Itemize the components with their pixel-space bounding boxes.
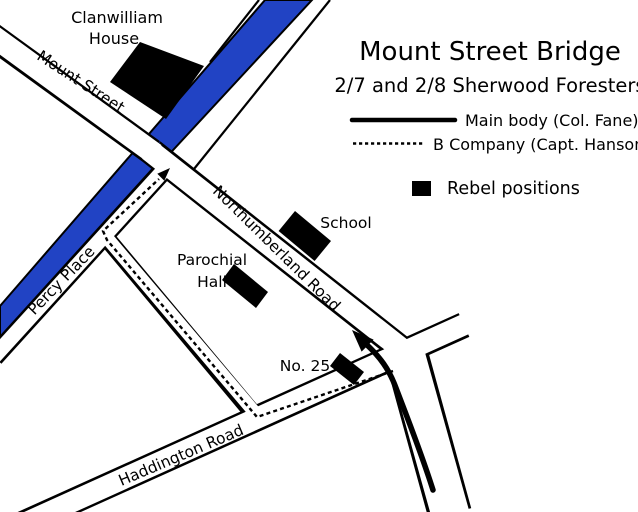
haddington-road-label: Haddington Road: [116, 421, 246, 490]
legend-rebel-label: Rebel positions: [447, 179, 580, 199]
battle-map: Clanwilliam House Mount Street Percy Pla…: [0, 0, 638, 512]
legend-main-body-label: Main body (Col. Fane): [465, 111, 638, 130]
page-subtitle: 2/7 and 2/8 Sherwood Foresters: [334, 74, 638, 97]
clanwilliam-label-line2: House: [89, 29, 139, 48]
school-label: School: [320, 214, 371, 232]
title-block: Mount Street Bridge 2/7 and 2/8 Sherwood…: [334, 37, 638, 97]
legend: Main body (Col. Fane) B Company (Capt. H…: [352, 111, 638, 199]
parochial-hall-building: [222, 264, 268, 308]
legend-rebel-square-icon: [412, 181, 431, 196]
parochial-hall-label-line2: Hall: [197, 273, 227, 291]
page-title: Mount Street Bridge: [359, 37, 621, 67]
map-canvas: Clanwilliam House Mount Street Percy Pla…: [0, 0, 638, 512]
legend-b-company-label: B Company (Capt. Hanson): [433, 135, 638, 154]
parochial-hall-label-line1: Parochial: [177, 251, 247, 269]
clanwilliam-label-line1: Clanwilliam: [71, 8, 163, 27]
no-25-label: No. 25: [280, 357, 330, 375]
